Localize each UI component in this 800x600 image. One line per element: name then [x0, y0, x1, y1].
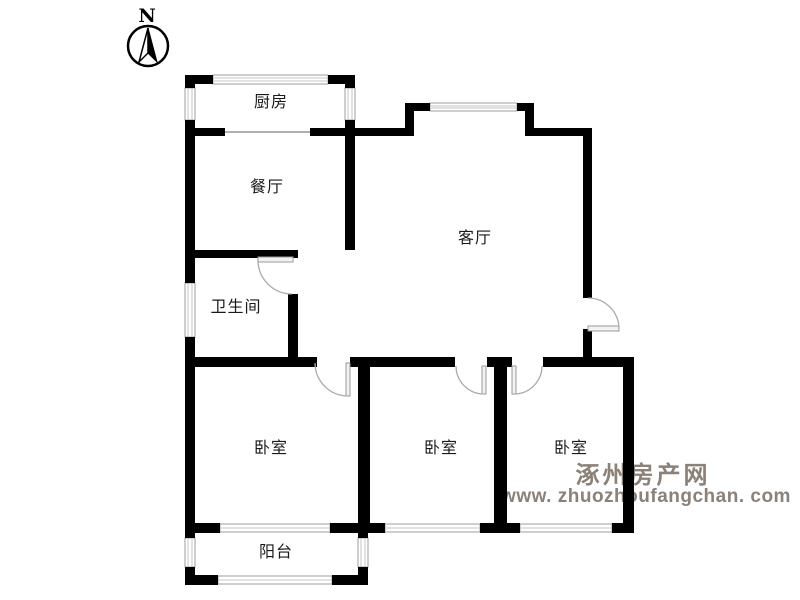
bedroom-middle-door	[456, 366, 486, 394]
compass-needle-right	[148, 28, 157, 62]
window-bedroom-left-balcony	[220, 524, 330, 532]
watermark: 涿州房产网 www. zhuozhoufangchan. com	[500, 461, 791, 507]
window-kitchen-left	[185, 88, 195, 120]
watermark-site-url: www. zhuozhoufangchan. com	[500, 486, 791, 507]
wall-segment	[480, 523, 520, 533]
wall-segment	[358, 533, 368, 538]
room-label-bathroom: 卫生间	[210, 298, 261, 316]
wall-segment	[405, 103, 430, 111]
wall-segment	[345, 120, 355, 250]
window-balcony-bottom	[218, 576, 332, 584]
bathroom-door	[258, 257, 293, 294]
room-label-bedroom-middle: 卧室	[424, 439, 458, 457]
wall-segment	[525, 103, 534, 136]
doors	[258, 257, 619, 396]
wall-segment	[583, 128, 592, 298]
room-label-kitchen: 厨房	[254, 93, 288, 111]
window-kitchen-right	[345, 88, 355, 120]
wall-segment	[330, 523, 385, 533]
window-bedroom-middle	[385, 524, 480, 532]
wall-segment	[543, 357, 634, 367]
wall-segment	[332, 575, 368, 585]
window-living-bay	[430, 103, 517, 111]
window-bedroom-right	[520, 524, 612, 532]
wall-segment	[185, 523, 220, 533]
wall-segment	[185, 75, 213, 84]
wall-segment	[345, 75, 355, 88]
compass-needle-left	[139, 28, 148, 62]
room-label-balcony: 阳台	[259, 543, 293, 561]
window-balcony-left	[185, 538, 195, 567]
wall-segment	[345, 128, 413, 136]
bedroom-left-door	[315, 363, 350, 396]
windows	[185, 75, 612, 584]
window-balcony-right	[358, 538, 368, 567]
north-label: N	[138, 5, 155, 27]
wall-segment	[185, 128, 225, 136]
room-label-bedroom-left: 卧室	[254, 439, 288, 457]
wall-segment	[185, 357, 317, 367]
watermark-site-name: 涿州房产网	[576, 461, 711, 489]
wall-segment	[612, 523, 634, 533]
floorplan-svg: 涿州房产网 www. zhuozhoufangchan. com	[0, 0, 800, 600]
room-label-living: 客厅	[458, 229, 492, 247]
room-label-dining: 餐厅	[250, 178, 284, 196]
compass-icon: N	[128, 5, 168, 66]
wall-segment	[185, 575, 218, 585]
entry-door	[588, 298, 619, 331]
walls	[185, 75, 634, 585]
wall-segment	[494, 357, 507, 523]
wall-segment	[358, 357, 370, 533]
wall-segment	[526, 128, 592, 136]
wall-segment	[623, 357, 634, 533]
bedroom-right-door	[512, 366, 542, 394]
wall-segment	[185, 120, 195, 283]
wall-segment	[185, 337, 195, 538]
floorplan-canvas: 涿州房产网 www. zhuozhoufangchan. com	[0, 0, 800, 600]
window-bathroom-left	[185, 283, 195, 337]
wall-segment	[288, 294, 298, 367]
window-kitchen-top	[213, 75, 328, 84]
room-label-bedroom-right: 卧室	[554, 439, 588, 457]
